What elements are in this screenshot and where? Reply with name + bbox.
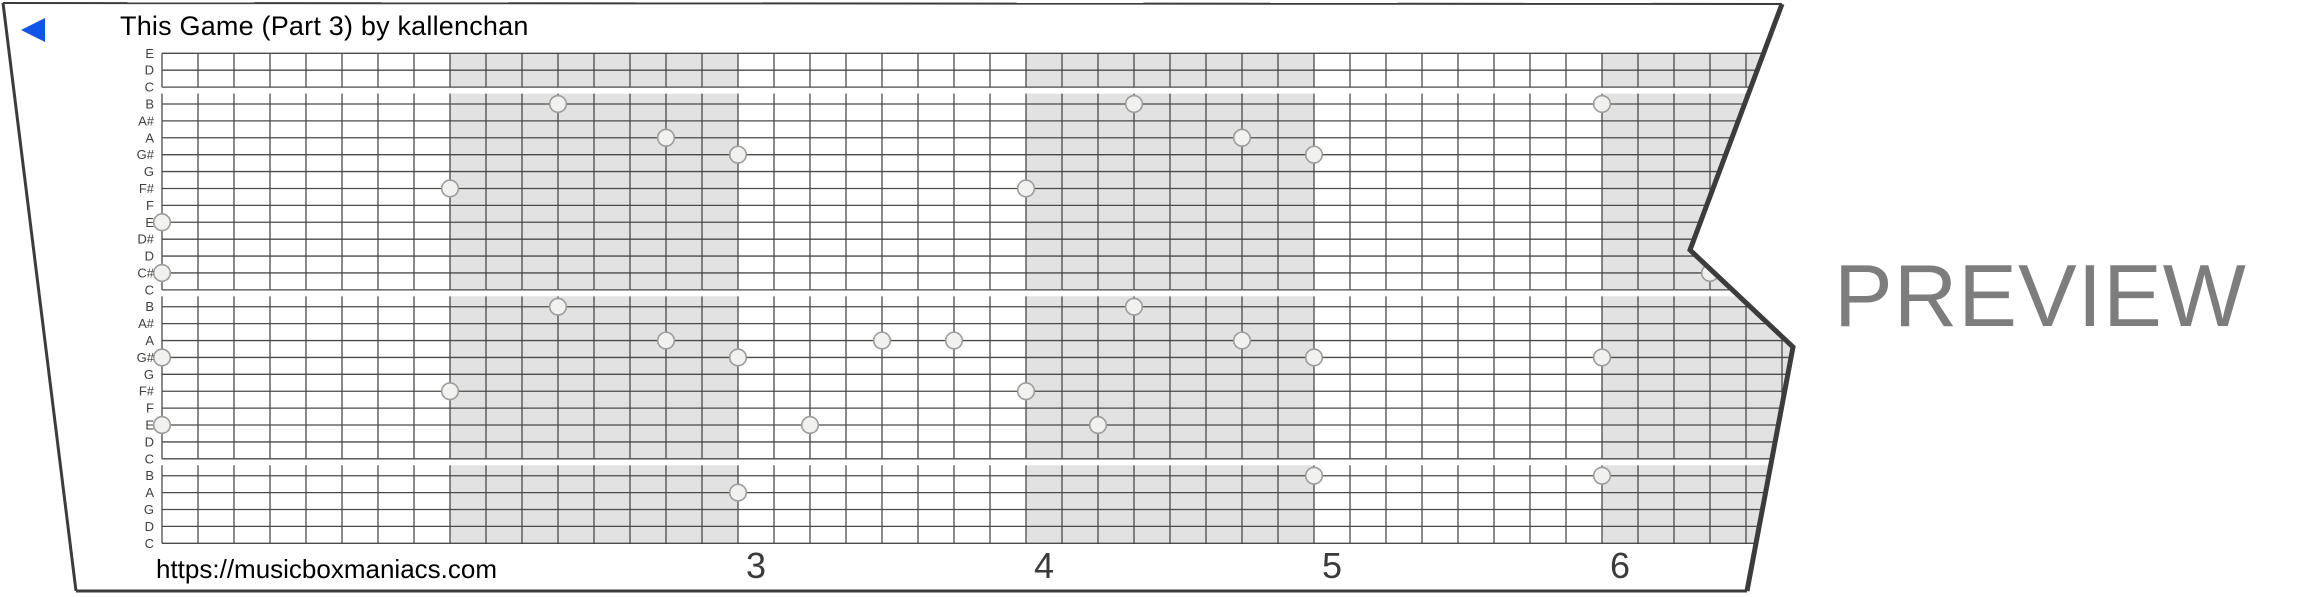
note-hole	[442, 180, 459, 197]
note-hole	[1018, 383, 1035, 400]
preview-watermark: PREVIEW	[1834, 252, 2247, 340]
row-label: D	[145, 519, 154, 534]
note-hole	[550, 96, 567, 113]
paper-strip	[3, 3, 1793, 591]
note-hole	[1594, 349, 1611, 366]
note-hole	[1090, 417, 1107, 434]
row-label: D	[145, 249, 154, 264]
row-label: G	[144, 367, 154, 382]
row-label: G#	[137, 350, 155, 365]
note-hole	[1594, 467, 1611, 484]
row-label: E	[145, 418, 154, 433]
note-hole	[1234, 332, 1251, 349]
note-hole	[1306, 349, 1323, 366]
note-hole	[1306, 146, 1323, 163]
note-hole	[802, 417, 819, 434]
note-hole	[550, 298, 567, 315]
note-hole	[154, 265, 171, 282]
note-hole	[154, 417, 171, 434]
row-label: G	[144, 502, 154, 517]
row-label: B	[145, 468, 154, 483]
note-hole	[1594, 96, 1611, 113]
measure-number: 3	[746, 545, 766, 586]
row-label: F#	[139, 384, 155, 399]
row-label: C#	[137, 265, 154, 280]
note-hole	[874, 332, 891, 349]
row-label: A	[145, 485, 154, 500]
row-label: A#	[138, 316, 155, 331]
row-label: E	[145, 46, 154, 61]
note-hole	[1018, 180, 1035, 197]
row-label: D	[145, 63, 154, 78]
footer-url: https://musicboxmaniacs.com	[156, 554, 497, 585]
music-box-strip-preview: EDCBA#AG#GF#FED#DC#CBA#AG#GF#FEDCBAGDC34…	[0, 0, 2310, 597]
row-label: A	[145, 130, 154, 145]
note-hole	[1306, 467, 1323, 484]
row-label: F	[146, 198, 154, 213]
row-label: E	[145, 215, 154, 230]
note-hole	[1234, 129, 1251, 146]
note-hole	[658, 332, 675, 349]
row-label: G#	[137, 147, 155, 162]
row-label: D#	[137, 232, 154, 247]
row-label: C	[145, 536, 154, 551]
row-label: C	[145, 80, 154, 95]
row-label: B	[145, 96, 154, 111]
measure-number: 4	[1034, 545, 1054, 586]
note-hole	[154, 214, 171, 231]
note-hole	[442, 383, 459, 400]
row-label: A	[145, 333, 154, 348]
note-hole	[730, 484, 747, 501]
page-title: This Game (Part 3) by kallenchan	[120, 11, 529, 42]
note-hole	[946, 332, 963, 349]
note-hole	[730, 146, 747, 163]
note-hole	[730, 349, 747, 366]
note-hole	[658, 129, 675, 146]
note-hole	[154, 349, 171, 366]
row-label: F#	[139, 181, 155, 196]
measure-number: 5	[1322, 545, 1342, 586]
row-label: G	[144, 164, 154, 179]
row-label: F	[146, 401, 154, 416]
row-label: C	[145, 451, 154, 466]
row-label: A#	[138, 113, 155, 128]
row-label: C	[145, 282, 154, 297]
measure-number: 6	[1610, 545, 1630, 586]
note-hole	[1126, 298, 1143, 315]
note-hole	[1126, 96, 1143, 113]
row-label: B	[145, 299, 154, 314]
row-label: D	[145, 434, 154, 449]
strip-edge-top	[3, 3, 1782, 4]
